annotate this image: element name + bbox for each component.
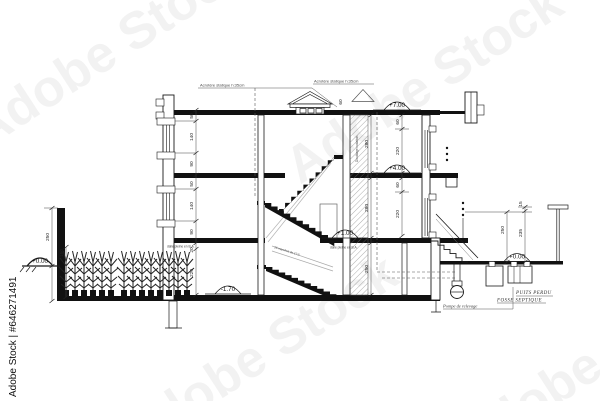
- puits-perdu-label: PUITS PERDU: [515, 291, 552, 296]
- pompe-relevage-label: Pompe de relevage: [442, 304, 477, 309]
- level-ground-left: +0.00: [32, 258, 48, 265]
- dim: 235: [518, 229, 524, 237]
- dim: 220: [395, 147, 401, 155]
- second-floor-slab-left: [163, 173, 285, 178]
- foundation-pile-left: [169, 301, 177, 328]
- dim: 220: [189, 269, 195, 277]
- watermark-credit: Adobe Stock | #646271491: [8, 276, 19, 397]
- level-ground-right: +0.00: [509, 254, 525, 261]
- dim: 220: [395, 210, 401, 218]
- slab-note-right: dalle pleine en B.A.: [330, 246, 358, 250]
- acrotere-note-right: Acrotère statique h:35cm: [314, 79, 359, 84]
- dim: 50: [189, 181, 195, 187]
- dim: 50: [189, 113, 195, 119]
- roof-overhang: [440, 111, 466, 114]
- dim: 15: [518, 201, 524, 207]
- dim: 90: [189, 229, 195, 235]
- dim: 140: [189, 202, 195, 210]
- stock-image-architectural-section: +7.00 +4.00 +1.00 +0.00 +0.00 -1.70 50 1…: [0, 0, 600, 401]
- dim: 60: [395, 182, 401, 188]
- window-lintel-upper: [157, 118, 175, 125]
- level-markers: [20, 102, 540, 294]
- level-basement: -1.70: [221, 286, 236, 293]
- window-sill-middle: [157, 220, 175, 227]
- fosse-septique-label: FOSSE SEPTIQUE: [496, 299, 542, 304]
- septic-tank: [486, 266, 503, 286]
- stair-outline: [272, 251, 333, 271]
- stairwell-wall-left: [258, 115, 264, 295]
- railing-dots: [446, 147, 464, 216]
- first-floor-slab-left: [163, 238, 265, 243]
- balcony-bracket: [446, 178, 457, 187]
- entry-handrail: [436, 214, 478, 258]
- right-foundation-wall: [431, 238, 440, 300]
- window-lintel-middle: [157, 186, 175, 193]
- vent-cap: [548, 205, 568, 209]
- dim: 150: [59, 249, 65, 257]
- first-floor-slab-right: [320, 238, 468, 243]
- parapet-tab-1: [156, 99, 164, 106]
- stair-note: 16 marches de 17,5: [274, 245, 301, 257]
- dim: 90: [189, 161, 195, 167]
- level-second-floor: +4.00: [389, 165, 405, 172]
- window-sill-upper: [157, 152, 175, 159]
- door: [320, 204, 337, 238]
- section-drawing: +7.00 +4.00 +1.00 +0.00 +0.00 -1.70 50 1…: [0, 0, 600, 401]
- garden-slab: [58, 296, 163, 301]
- watermark-diagonal: Adobe Stock: [0, 0, 258, 160]
- slab-note-left: dalle pleine en B.A.: [167, 245, 195, 249]
- dim: 250: [45, 233, 51, 241]
- vent-pole: [557, 209, 559, 261]
- level-first-floor: +1.00: [337, 230, 353, 237]
- entrance: [430, 147, 568, 262]
- dim: 280: [364, 204, 370, 212]
- acrotere-note-left: Acrotère statique h:35cm: [200, 83, 245, 88]
- chimney-bracket: [477, 105, 484, 115]
- watermarks: Adobe Stock Adobe Stock Adobe Stock Adob…: [0, 0, 600, 401]
- pump-pipe: [454, 263, 460, 283]
- dim: 140: [189, 133, 195, 141]
- dim: 250: [500, 226, 506, 234]
